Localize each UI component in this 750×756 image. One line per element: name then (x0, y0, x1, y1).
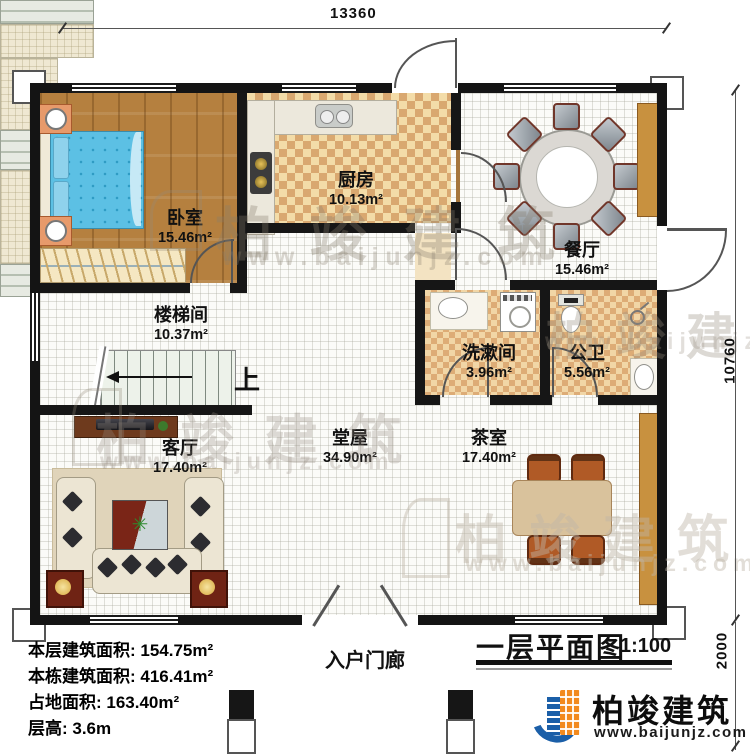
bedroom-door-leaf (231, 239, 233, 283)
washroom-sink (438, 297, 468, 319)
brand-logo-icon (530, 686, 588, 744)
title-underline (476, 660, 672, 665)
shower-head-icon (630, 310, 645, 325)
wall (540, 290, 550, 395)
room-label-dining: 餐厅 15.46m² (555, 240, 609, 279)
room-label-stair-hall: 楼梯间 10.37m² (154, 305, 208, 344)
sofa (56, 477, 96, 579)
kitchen-vestibule-floor (415, 233, 451, 280)
toilet-tank (558, 294, 584, 306)
room-area: 5.56m² (564, 365, 610, 381)
burner (255, 176, 267, 188)
back-door-swing (394, 40, 456, 88)
hall-dining-door-leaf (455, 228, 457, 280)
plan-scale: 1:100 (620, 635, 671, 658)
entrance-column-base (227, 719, 256, 754)
room-name: 厨房 (338, 170, 374, 190)
room-name: 楼梯间 (154, 305, 208, 325)
room-label-tea-room: 茶室 17.40m² (462, 428, 516, 467)
washer-door (509, 306, 531, 328)
room-name: 堂屋 (332, 428, 368, 448)
info-line-floor-area: 本层建筑面积: 154.75m² (28, 638, 213, 664)
room-label-entrance-porch: 入户门廊 (325, 650, 405, 672)
floor-plan-canvas: 13360 10760 2000 入户门廊 (0, 0, 750, 756)
side-door-opening (657, 226, 667, 290)
dim-porch-depth: 2000 (714, 621, 731, 681)
kitchen-sink (315, 104, 353, 128)
side-door-leaf (667, 228, 727, 231)
dining-cabinet (637, 103, 659, 217)
wall (415, 280, 455, 290)
room-area: 10.13m² (329, 192, 383, 208)
wall (247, 223, 415, 233)
dim-top-line (62, 28, 667, 29)
logo-tower-orange (560, 690, 580, 735)
room-label-living: 客厅 17.40m² (153, 438, 207, 477)
dim-tick (731, 740, 740, 752)
room-name: 公卫 (569, 343, 605, 363)
title-underline-thin (476, 668, 672, 670)
dim-top-width: 13360 (330, 5, 377, 22)
stair-up-label: 上 (234, 360, 260, 397)
stair-arrow-icon (106, 371, 119, 383)
room-area: 34.90m² (323, 450, 377, 466)
wall (510, 280, 667, 290)
end-table-lamp-icon (199, 579, 215, 595)
sink-basin (336, 110, 350, 124)
washer-controls (503, 295, 532, 301)
room-label-bedroom: 卧室 15.46m² (158, 208, 212, 247)
room-name: 餐厅 (564, 240, 600, 260)
burner (255, 158, 267, 170)
dining-chair (613, 163, 640, 190)
room-area: 3.96m² (466, 365, 512, 381)
info-line-footprint-area: 占地面积: 163.40m² (28, 690, 213, 716)
bed-sheet-fold (130, 132, 141, 226)
brand-website: www.baijunjz.com (594, 724, 747, 741)
tea-chair (527, 535, 561, 565)
room-label-hall: 堂屋 34.90m² (323, 428, 377, 467)
table-plant-icon: ✳ (132, 514, 149, 536)
room-label-washroom: 洗漱间 3.96m² (462, 343, 516, 382)
area-info-block: 本层建筑面积: 154.75m² 本栋建筑面积: 416.41m² 占地面积: … (28, 638, 213, 742)
wall (237, 93, 247, 288)
room-area: 17.40m² (462, 450, 516, 466)
tea-table (512, 480, 612, 536)
dining-table-top (536, 146, 598, 208)
room-label-bathroom: 公卫 5.56m² (564, 343, 610, 382)
room-area: 10.37m² (154, 327, 208, 343)
kitchen-dining-door-leaf (456, 150, 460, 202)
logo-tower-blue (547, 697, 560, 735)
room-area: 17.40m² (153, 460, 207, 476)
wall (230, 283, 247, 293)
window (30, 293, 40, 361)
back-porch-floor (0, 24, 94, 58)
entrance-column (448, 690, 473, 719)
room-name: 客厅 (162, 438, 198, 458)
window (72, 83, 176, 93)
room-name: 卧室 (167, 208, 203, 228)
wall (40, 283, 190, 293)
back-door-leaf (455, 38, 457, 88)
washing-machine (500, 292, 536, 332)
wall (415, 395, 440, 405)
room-name: 入户门廊 (325, 650, 405, 672)
window (504, 83, 616, 93)
wall (598, 395, 667, 405)
wall (415, 290, 425, 395)
stove (250, 152, 272, 194)
room-name: 茶室 (471, 428, 507, 448)
window (282, 83, 356, 93)
room-area: 15.46m² (158, 230, 212, 246)
back-porch-steps (0, 0, 94, 24)
window (515, 615, 603, 625)
entrance-column (229, 690, 254, 719)
wardrobe (40, 248, 186, 283)
wall (490, 395, 552, 405)
tea-cabinet (639, 413, 659, 605)
entrance-column-base (446, 719, 475, 754)
bathroom-sink (634, 364, 654, 390)
stair-direction-line (116, 376, 192, 378)
tv-screen (96, 419, 154, 430)
bathroom-door-leaf (552, 347, 554, 397)
room-label-kitchen: 厨房 10.13m² (329, 170, 383, 209)
nightstand-lamp-icon (45, 108, 67, 130)
toilet-flush (564, 298, 578, 303)
info-line-building-area: 本栋建筑面积: 416.41m² (28, 664, 213, 690)
bed-pillow (53, 137, 69, 179)
room-name: 洗漱间 (462, 343, 516, 363)
window (90, 615, 178, 625)
dining-chair (553, 103, 580, 130)
staircase (100, 350, 236, 408)
wall (451, 93, 461, 150)
tea-chair (571, 535, 605, 565)
end-table-lamp-icon (55, 579, 71, 595)
room-area: 15.46m² (555, 262, 609, 278)
coffee-table: ✳ (112, 500, 168, 550)
info-line-floor-height: 层高: 3.6m (28, 716, 213, 742)
sink-basin (320, 110, 334, 124)
dim-right-height: 10760 (722, 321, 739, 401)
side-door-swing (667, 230, 727, 292)
tv-plant-icon (158, 421, 168, 431)
wall (40, 405, 252, 415)
nightstand-lamp-icon (45, 220, 67, 242)
